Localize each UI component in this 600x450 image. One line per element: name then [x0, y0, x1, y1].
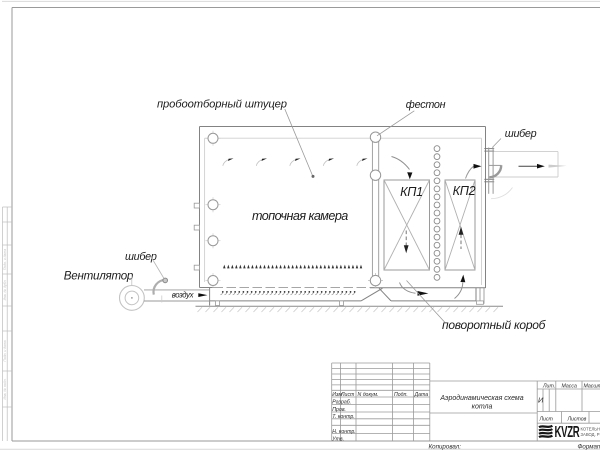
svg-text:Формат А3: Формат А3 [578, 444, 600, 450]
svg-text:фестон: фестон [406, 99, 446, 111]
svg-text:Подп. и дата: Подп. и дата [3, 249, 7, 270]
svg-text:КП2: КП2 [453, 184, 476, 198]
svg-text:Пров.: Пров. [332, 407, 346, 413]
svg-text:Т. контр.: Т. контр. [332, 414, 354, 420]
svg-text:KVZR: KVZR [555, 422, 581, 440]
svg-text:Вентилятор: Вентилятор [64, 270, 134, 283]
svg-text:Инв. № подл.: Инв. № подл. [3, 378, 7, 399]
svg-text:Разраб.: Разраб. [332, 400, 351, 406]
svg-text:Подп. и дата: Подп. и дата [3, 340, 7, 361]
svg-text:Инв. № дубл.: Инв. № дубл. [3, 280, 7, 301]
svg-text:шибер: шибер [125, 251, 157, 263]
svg-text:котла: котла [472, 404, 493, 411]
svg-text:Аэродинамическая схема: Аэродинамическая схема [439, 394, 523, 402]
svg-text:Копировал:: Копировал: [429, 443, 462, 450]
svg-text:Утв.: Утв. [332, 436, 344, 442]
svg-text:Дата: Дата [414, 392, 429, 398]
svg-text:шибер: шибер [505, 128, 537, 140]
svg-text:Лит.: Лит. [542, 384, 555, 390]
svg-text:И: И [538, 395, 544, 404]
svg-text:КОТЕЛЬНЫЙ: КОТЕЛЬНЫЙ [581, 426, 600, 431]
svg-text:КП1: КП1 [400, 185, 423, 199]
svg-text:ЗАВОД. РЕШЕНИЯ: ЗАВОД. РЕШЕНИЯ [581, 432, 600, 437]
svg-text:Н. контр.: Н. контр. [332, 429, 355, 435]
svg-text:Подп.: Подп. [394, 392, 408, 398]
svg-text:Масса: Масса [562, 384, 577, 390]
svg-text:поворотный короб: поворотный короб [442, 318, 547, 332]
svg-text:Масштаб: Масштаб [584, 384, 600, 390]
svg-text:Лист: Лист [340, 392, 355, 398]
svg-text:Лист: Лист [539, 416, 554, 422]
svg-text:воздух: воздух [172, 291, 195, 300]
svg-text:пробоотборный штуцер: пробоотборный штуцер [157, 99, 287, 111]
svg-text:топочная камера: топочная камера [252, 209, 348, 223]
svg-text:N докум.: N докум. [358, 392, 379, 398]
